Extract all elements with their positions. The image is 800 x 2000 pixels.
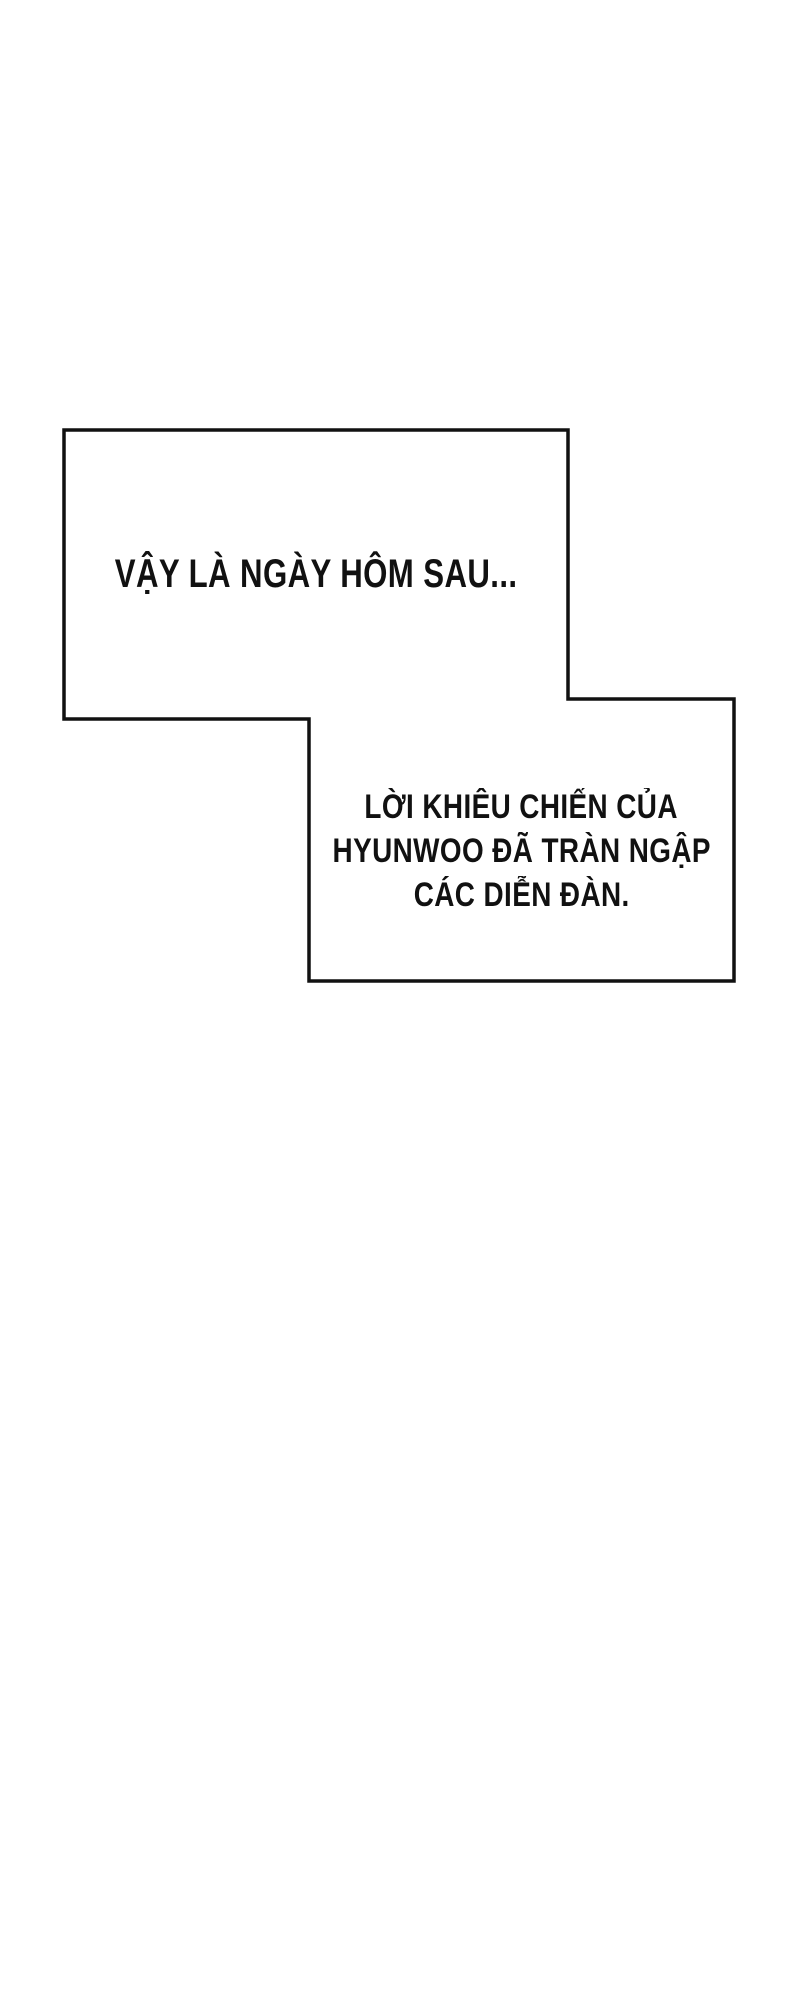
narration-boxes-outline (0, 0, 800, 2000)
narration-box-2-line-1: LỜI KHIÊU CHIẾN CỦA (365, 785, 678, 829)
narration-box-1: VẬY LÀ NGÀY HÔM SAU... (66, 433, 566, 716)
narration-box-1-text: VẬY LÀ NGÀY HÔM SAU... (115, 552, 518, 597)
narration-box-2: LỜI KHIÊU CHIẾN CỦA HYUNWOO ĐÃ TRÀN NGẬP… (311, 701, 732, 979)
narration-box-2-line-3: CÁC DIỄN ĐÀN. (414, 873, 630, 917)
narration-box-2-line-2: HYUNWOO ĐÃ TRÀN NGẬP (332, 829, 710, 873)
comic-page: VẬY LÀ NGÀY HÔM SAU... LỜI KHIÊU CHIẾN C… (0, 0, 800, 2000)
